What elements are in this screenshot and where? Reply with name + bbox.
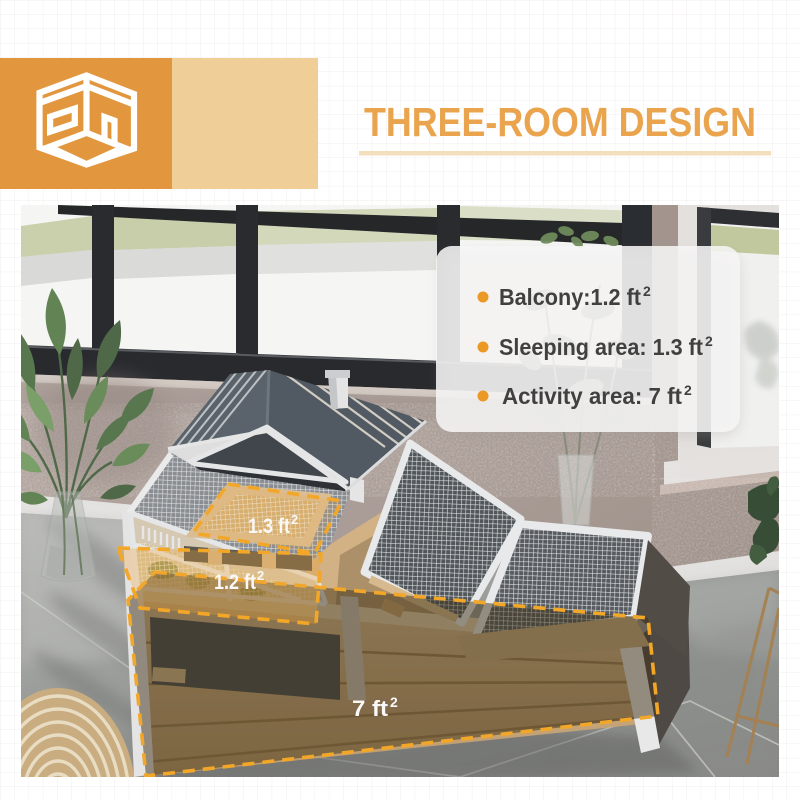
svg-text:THREE-ROOM DESIGN: THREE-ROOM DESIGN (364, 99, 756, 145)
